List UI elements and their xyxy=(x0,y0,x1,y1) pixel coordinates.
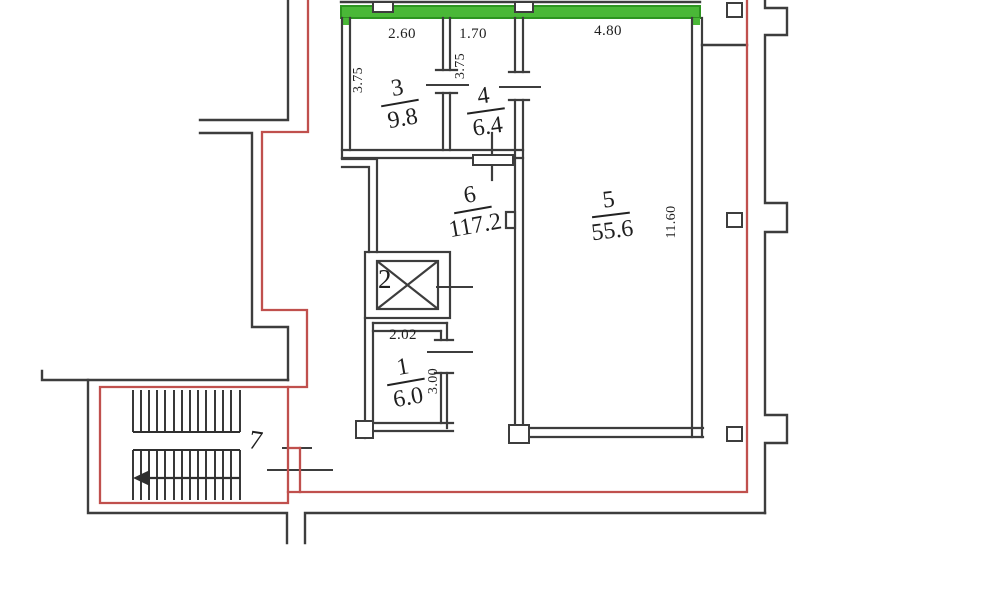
column-marker xyxy=(727,213,742,227)
door-leaf-marker xyxy=(473,155,513,165)
corner-post xyxy=(356,421,373,438)
dim-room5-width: 4.80 xyxy=(558,23,658,40)
dim-room5-depth: 11.60 xyxy=(664,192,680,252)
door-marks xyxy=(268,85,540,470)
wall-post-marker xyxy=(515,2,533,12)
room-label-5: 5 55.6 xyxy=(565,183,656,248)
room-number: 4 xyxy=(463,82,505,115)
dim-room4-width: 1.70 xyxy=(437,26,509,43)
staircase xyxy=(133,390,240,500)
wall-post-marker xyxy=(373,2,393,12)
column-marker xyxy=(727,3,742,17)
dim-room1-width: 2.02 xyxy=(373,327,433,344)
column-marker xyxy=(727,427,742,441)
corner-post xyxy=(509,425,529,443)
dim-room3-width: 2.60 xyxy=(362,26,442,43)
dim-room4-depth: 3.75 xyxy=(453,41,469,91)
room-label-4: 4 6.4 xyxy=(445,79,527,144)
room-label-2: 2 xyxy=(378,266,392,293)
floor-plan: 2.60 1.70 4.80 3.75 3.75 11.60 2.02 3.00… xyxy=(0,0,1000,604)
highlighted-wall xyxy=(341,2,700,25)
room-number: 5 xyxy=(588,186,629,218)
